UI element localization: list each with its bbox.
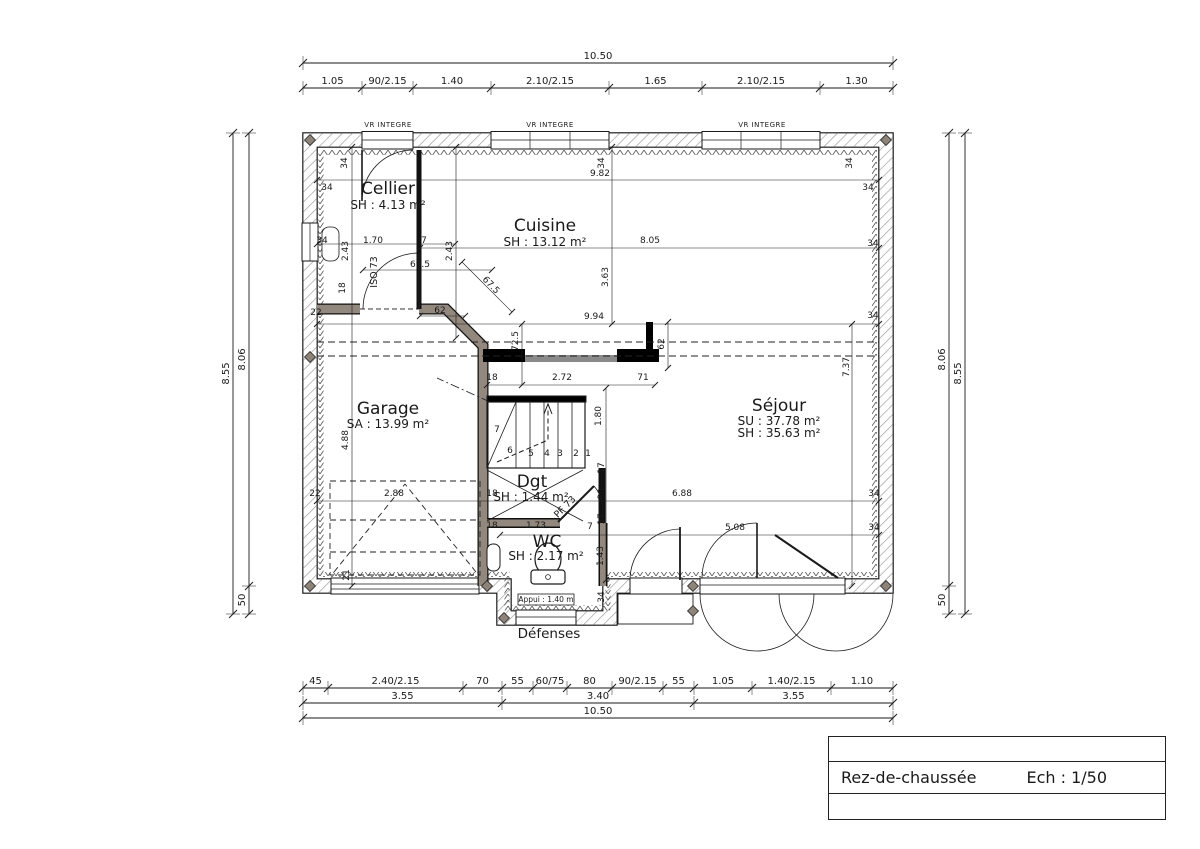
dim-annotation: 1.73: [526, 521, 546, 531]
room-area-cuisine: SH : 13.12 m²: [504, 235, 587, 249]
french-door-swing-out-2: [779, 594, 893, 651]
dim-annotation: 2.88: [384, 489, 404, 499]
dim-annotation: 34: [340, 157, 350, 169]
chain-dim-label: 60/75: [536, 676, 565, 687]
dim-annotation: 4.88: [341, 430, 351, 450]
dim-annotation: 34: [597, 591, 607, 603]
drawing-title: Rez-de-chaussée: [829, 768, 1026, 787]
chain-dim-label: 8.55: [953, 362, 964, 384]
chain-dim-label: 50: [937, 594, 948, 607]
room-area-wc: SH : 2.17 m²: [508, 549, 584, 563]
drawing-scale: Ech : 1/50: [1026, 768, 1165, 787]
dim-annotation: 1: [585, 449, 591, 459]
dim-annotation: 34: [321, 183, 333, 193]
dim-annotation: 9.94: [584, 312, 604, 322]
dim-annotation: 6: [507, 446, 513, 456]
insulation-liner: [321, 153, 875, 609]
chain-dim-label: 2.10/2.15: [526, 76, 574, 87]
room-name-sejour: Séjour: [752, 396, 806, 416]
dim-annotation: 18: [486, 521, 498, 531]
dim-annotation: 67.5: [480, 275, 501, 296]
dim-annotation: 7: [494, 425, 500, 435]
dim-annotation: 34: [845, 157, 855, 169]
dim-annotation: 71: [637, 373, 648, 383]
chain-dim-label: 3.55: [391, 691, 413, 702]
sill-label: Appui : 1.40 m: [518, 595, 573, 604]
dim-annotation: 7: [421, 236, 427, 246]
dim-annotation: 6.88: [672, 489, 692, 499]
porch-slab: [618, 594, 693, 624]
chain-dim-label: 2.10/2.15: [737, 76, 785, 87]
garage-door: [330, 481, 480, 575]
chain-dim-label: 1.30: [845, 76, 867, 87]
dim-annotation: 1.80: [594, 406, 604, 426]
floor-plan-canvas: 10.501.0590/2.151.402.10/2.151.652.10/2.…: [0, 0, 1200, 849]
room-name-dgt: Dgt: [517, 472, 548, 492]
room-name-cuisine: Cuisine: [514, 216, 576, 236]
dim-annotation: 18: [338, 282, 348, 294]
chain-dim-label: 1.65: [644, 76, 666, 87]
dim-annotation: 3: [557, 449, 563, 459]
title-block-row-middle: Rez-de-chaussée Ech : 1/50: [829, 762, 1165, 794]
wc-basin: [487, 544, 500, 571]
dim-annotation: 7.37: [842, 357, 852, 377]
room-area-garage: SA : 13.99 m²: [347, 417, 430, 431]
french-door-swing-out-1: [700, 594, 814, 651]
chain-dim-label: 80: [583, 676, 596, 687]
chain-dim-label: 10.50: [584, 706, 613, 717]
chain-dim-label: 8.06: [937, 348, 948, 370]
dim-annotation: 2.43: [341, 241, 351, 261]
dim-annotation: 21: [342, 569, 352, 580]
room-name-cellier: Cellier: [361, 179, 415, 199]
dim-annotation: 34: [868, 523, 880, 533]
chain-dim-label: 1.40: [441, 76, 463, 87]
dim-annotation: 34: [867, 311, 879, 321]
french-door-opening: [700, 578, 845, 594]
dim-annotation: 3.63: [601, 267, 611, 287]
window-label-2: VR INTEGRE: [526, 121, 574, 129]
dim-annotation: 34: [862, 183, 874, 193]
chain-dim-label: 3.55: [782, 691, 804, 702]
french-door-leaf-2: [775, 535, 838, 578]
dim-annotation: 1.43: [596, 546, 606, 566]
dim-annotation: 72.5: [511, 331, 521, 351]
chain-dim-label: 45: [309, 676, 322, 687]
dim-annotation: 2.43: [445, 241, 455, 261]
dim-annotation: 34: [867, 239, 879, 249]
entrance-door-opening: [630, 578, 682, 594]
dim-annotation: 17: [597, 513, 607, 524]
window-wc: [516, 610, 576, 625]
room-area-sh-sejour: SH : 35.63 m²: [738, 426, 821, 440]
window-label-1: VR INTEGRE: [364, 121, 412, 129]
defenses-label: Défenses: [518, 626, 581, 642]
dim-annotation: 34: [316, 236, 328, 246]
chain-dim-label: 50: [237, 594, 248, 607]
door-label-iso73: ISO 73: [369, 256, 380, 287]
chain-dim-label: 8.55: [221, 362, 232, 384]
dim-annotation: 17: [597, 462, 607, 473]
room-name-garage: Garage: [357, 399, 419, 419]
stair-walk-line: [497, 410, 548, 462]
chain-dim-label: 55: [511, 676, 524, 687]
dim-annotation: 4: [544, 449, 550, 459]
room-labels: Cellier SH : 4.13 m² Cuisine SH : 13.12 …: [347, 121, 821, 642]
chain-dim-label: 1.10: [851, 676, 873, 687]
chain-dim-label: 3.40: [587, 691, 609, 702]
room-area-dgt: SH : 1.44 m²: [493, 490, 569, 504]
chain-dim-label: 10.50: [584, 51, 613, 62]
dim-annotation: 5.08: [725, 523, 745, 533]
title-block-row-top: [829, 737, 1165, 762]
dim-annotation: 22: [310, 308, 321, 318]
dim-annotation: 80: [597, 488, 607, 500]
dim-annotation: 2.72: [552, 373, 572, 383]
dim-annotation: 62: [434, 306, 445, 316]
chain-dim-label: 1.40/2.15: [768, 676, 816, 687]
dim-annotations: 9.823434343434348.053.632.432.431.707341…: [309, 157, 880, 603]
dim-annotation: 34: [597, 157, 607, 169]
chain-dim-label: 2.40/2.15: [372, 676, 420, 687]
dim-annotation: 5: [528, 449, 534, 459]
room-area-cellier: SH : 4.13 m²: [350, 198, 426, 212]
chain-dim-label: 8.06: [237, 348, 248, 370]
dim-annotation: 2: [573, 449, 579, 459]
dim-annotation: 8.05: [640, 236, 660, 246]
dim-annotation: 18: [486, 373, 498, 383]
floor-plan-page: 10.501.0590/2.151.402.10/2.151.652.10/2.…: [0, 0, 1200, 849]
dim-annotation: 1.70: [363, 236, 383, 246]
chain-dim-label: 1.05: [321, 76, 343, 87]
window-label-3: VR INTEGRE: [738, 121, 786, 129]
chain-dim-label: 55: [672, 676, 685, 687]
dim-annotation: 9.82: [590, 169, 610, 179]
chain-dim-label: 90/2.15: [618, 676, 656, 687]
dim-annotation: 69.5: [410, 260, 430, 270]
title-block: Rez-de-chaussée Ech : 1/50: [828, 736, 1166, 820]
dim-annotation: 34: [868, 489, 880, 499]
dim-annotation: 22: [309, 489, 320, 499]
title-block-row-bottom: [829, 794, 1165, 818]
toilet-button: [546, 575, 551, 580]
garage-door-opening: [331, 578, 479, 594]
chain-dim-label: 90/2.15: [368, 76, 406, 87]
chain-dim-label: 70: [476, 676, 489, 687]
chain-dim-label: 1.05: [712, 676, 734, 687]
dim-annotation: 7: [587, 522, 593, 532]
dim-annotation: 62: [657, 338, 667, 349]
